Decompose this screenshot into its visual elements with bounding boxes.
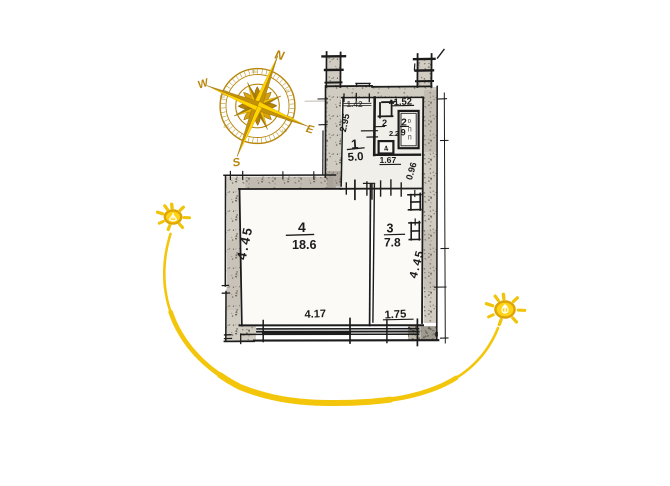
svg-text:3: 3 [387,222,394,236]
svg-text:4.17: 4.17 [304,308,326,321]
svg-text:330: 330 [252,70,258,74]
svg-text:5.0: 5.0 [347,151,364,164]
svg-text:60: 60 [286,89,290,93]
svg-text:П: П [408,136,412,142]
svg-text:4: 4 [298,219,306,235]
svg-text:1.67: 1.67 [380,155,397,165]
svg-text:1.52: 1.52 [393,96,412,108]
svg-text:300: 300 [220,95,226,99]
svg-text:240: 240 [224,125,230,129]
svg-text:120: 120 [282,129,288,133]
svg-text:7.8: 7.8 [384,236,401,250]
svg-text:П: П [408,127,412,133]
svg-text:0: 0 [408,119,411,125]
svg-text:18.6: 18.6 [292,238,317,252]
svg-text:2.2: 2.2 [389,129,399,138]
svg-text:9: 9 [401,127,406,137]
